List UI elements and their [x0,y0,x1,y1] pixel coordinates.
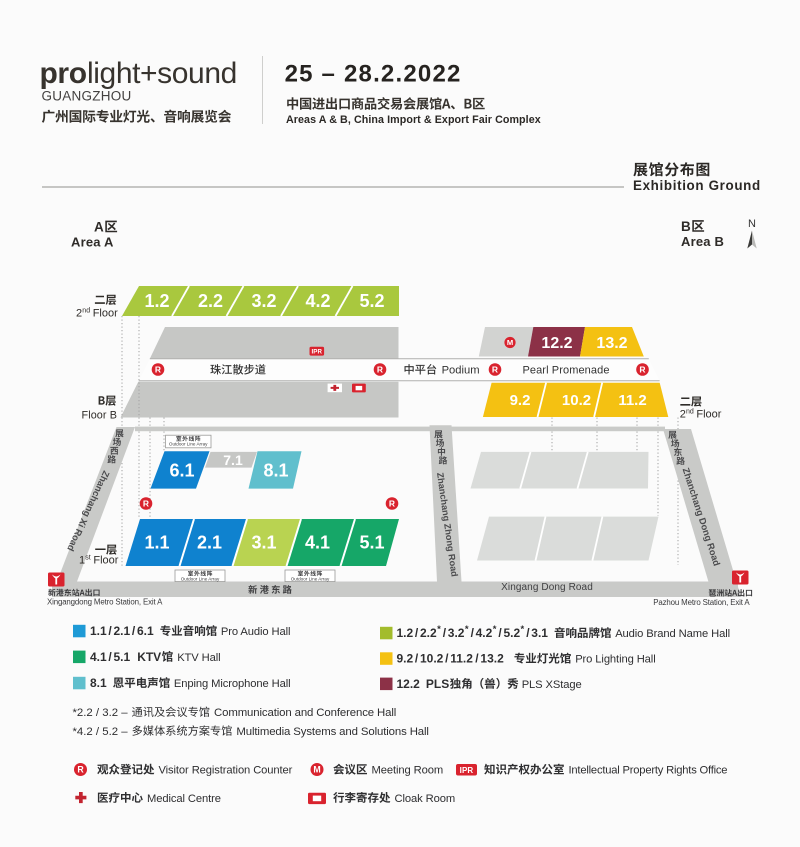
svg-text:Pearl Promenade: Pearl Promenade [522,365,609,377]
svg-text:Enping Microphone Hall: Enping Microphone Hall [174,678,291,690]
svg-text:1.1: 1.1 [144,533,169,553]
svg-text:Audio Brand Name Hall: Audio Brand Name Hall [615,628,730,640]
svg-text:10.2: 10.2 [562,392,591,409]
svg-text:Intellectual Property Rights O: Intellectual Property Rights Office [569,765,728,777]
svg-text:2.2: 2.2 [198,291,223,311]
svg-text:*4.2 / 5.2 –: *4.2 / 5.2 – [73,726,129,738]
svg-text:R: R [492,365,498,375]
svg-text:light+sound: light+sound [87,57,237,90]
svg-text:Medical Centre: Medical Centre [147,793,221,805]
svg-text:3.1: 3.1 [251,533,276,553]
svg-text:4.1: 4.1 [90,650,107,664]
svg-text:pro: pro [40,57,87,90]
svg-text:IPR: IPR [311,349,322,356]
svg-text:R: R [377,365,383,375]
svg-text:R: R [639,365,645,375]
svg-text:IPR: IPR [460,766,474,775]
svg-text:4.1: 4.1 [305,533,330,553]
svg-text:2.1: 2.1 [114,624,131,638]
svg-text:R: R [155,365,161,375]
svg-text:PLS XStage: PLS XStage [522,679,582,691]
svg-text:Floor: Floor [93,555,118,567]
svg-text:2: 2 [680,409,686,421]
svg-text:Exhibition Ground: Exhibition Ground [633,178,761,193]
svg-text:KTV: KTV [137,650,161,664]
svg-text:Meeting Room: Meeting Room [372,765,444,777]
svg-text:Podium: Podium [442,365,480,377]
svg-text:GUANGZHOU: GUANGZHOU [42,89,132,104]
svg-text:Outdoor Line Array: Outdoor Line Array [181,576,220,581]
svg-text:4.2: 4.2 [305,291,330,311]
svg-text:11.2: 11.2 [450,652,473,666]
svg-text:2: 2 [76,308,82,320]
svg-text:Communication and Conference H: Communication and Conference Hall [214,707,396,719]
svg-text:Xingangdong Metro Station, Exi: Xingangdong Metro Station, Exit A [47,597,163,606]
svg-text:6.1: 6.1 [169,461,194,481]
svg-text:9.2: 9.2 [510,392,531,409]
svg-text:2.1: 2.1 [197,533,222,553]
svg-text:5.2: 5.2 [359,291,384,311]
svg-text:Floor: Floor [93,308,118,320]
svg-text:3.2: 3.2 [251,291,276,311]
svg-text:B: B [681,219,691,234]
svg-text:7.1: 7.1 [223,452,243,468]
svg-text:2.2: 2.2 [420,626,437,640]
svg-text:9.2: 9.2 [397,652,414,666]
svg-text:8.1: 8.1 [263,461,288,481]
svg-text:R: R [77,765,84,775]
svg-text:Floor B: Floor B [82,409,118,421]
svg-text:Floor: Floor [696,409,721,421]
svg-text:Area B: Area B [681,234,724,249]
svg-text:13.2: 13.2 [480,652,504,666]
svg-text:5.2: 5.2 [504,626,521,640]
svg-text:Pazhou Metro Station, Exit A: Pazhou Metro Station, Exit A [653,598,750,607]
svg-text:nd: nd [686,409,694,416]
svg-text:3.1: 3.1 [531,626,548,640]
svg-text:8.1: 8.1 [90,676,107,690]
svg-text:1: 1 [79,555,85,567]
svg-text:Pro Lighting Hall: Pro Lighting Hall [575,654,655,666]
svg-text:Visitor Registration Counter: Visitor Registration Counter [159,765,293,777]
svg-text:10.2: 10.2 [420,652,444,666]
svg-text:Areas A & B, China Import & Ex: Areas A & B, China Import & Export Fair … [286,114,541,126]
svg-text:6.1: 6.1 [137,624,154,638]
svg-text:Cloak Room: Cloak Room [395,793,456,805]
svg-text:11.2: 11.2 [618,392,646,409]
svg-text:12.2: 12.2 [541,335,572,352]
svg-text:*2.2 / 3.2 –: *2.2 / 3.2 – [73,707,129,719]
svg-text:*: * [437,624,441,635]
svg-text:Xingang Dong Road: Xingang Dong Road [501,582,593,593]
svg-text:*: * [493,624,497,635]
svg-text:Pro Audio Hall: Pro Audio Hall [221,626,291,638]
svg-text:*: * [465,624,469,635]
svg-text:M: M [313,765,320,775]
svg-text:Outdoor Line Array: Outdoor Line Array [291,576,330,581]
svg-text:25 – 28.2.2022: 25 – 28.2.2022 [285,61,462,88]
svg-text:1.2: 1.2 [397,626,414,640]
svg-text:*: * [521,624,525,635]
svg-text:Multimedia Systems and Solutio: Multimedia Systems and Solutions Hall [236,726,428,738]
svg-text:PLS: PLS [426,677,449,691]
svg-text:13.2: 13.2 [596,335,627,352]
svg-text:st: st [85,555,91,562]
svg-text:4.2: 4.2 [476,626,493,640]
svg-text:Area A: Area A [71,235,114,250]
svg-text:nd: nd [82,308,90,315]
svg-text:3.2: 3.2 [448,626,465,640]
svg-text:R: R [143,499,149,509]
svg-text:A: A [94,220,104,235]
svg-text:1.1: 1.1 [90,624,107,638]
svg-text:KTV Hall: KTV Hall [177,652,220,664]
svg-text:R: R [389,499,395,509]
svg-text:M: M [507,338,513,347]
svg-text:5.1: 5.1 [359,533,384,553]
svg-text:Outdoor Line Array: Outdoor Line Array [169,442,208,447]
svg-text:12.2: 12.2 [397,677,421,691]
svg-text:1.2: 1.2 [144,291,169,311]
svg-text:5.1: 5.1 [114,650,131,664]
svg-text:N: N [748,218,756,230]
